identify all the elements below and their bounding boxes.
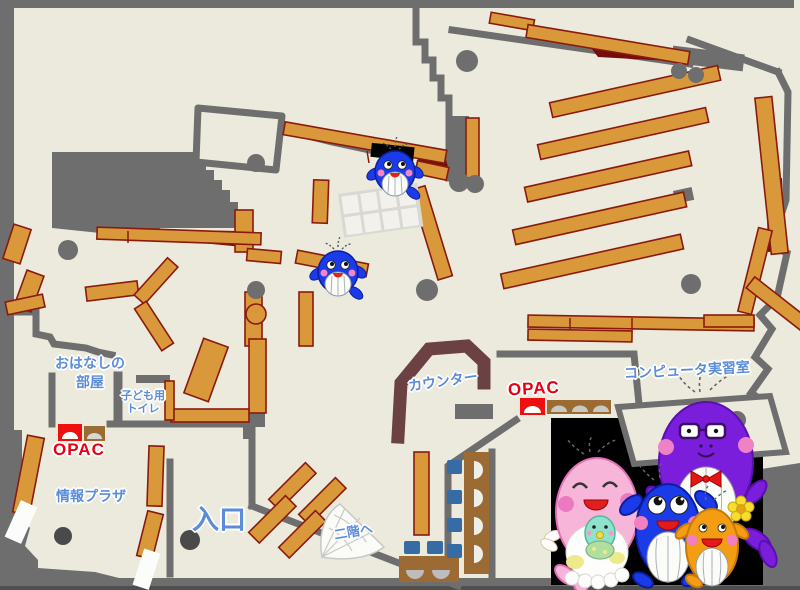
opac-station-right	[520, 398, 611, 415]
library-floor-map: おはなしの 部屋 子ども用 トイレ OPAC 情報プラザ 入口 二階へ カウンタ…	[0, 0, 800, 590]
label-entrance: 入口	[192, 506, 246, 536]
label-kids-toilet-line2: トイレ	[118, 403, 168, 415]
label-kids-toilet-line1: 子ども用	[118, 390, 168, 402]
label-info-plaza: 情報プラザ	[56, 489, 126, 504]
label-storytelling-room-line1: おはなしの	[53, 356, 127, 371]
label-opac-right: OPAC	[508, 379, 561, 400]
baby-teal-whale-icon	[585, 516, 615, 559]
label-storytelling-room-line2: 部屋	[53, 375, 127, 390]
opac-station-left	[58, 424, 105, 441]
label-opac-left: OPAC	[53, 441, 105, 460]
